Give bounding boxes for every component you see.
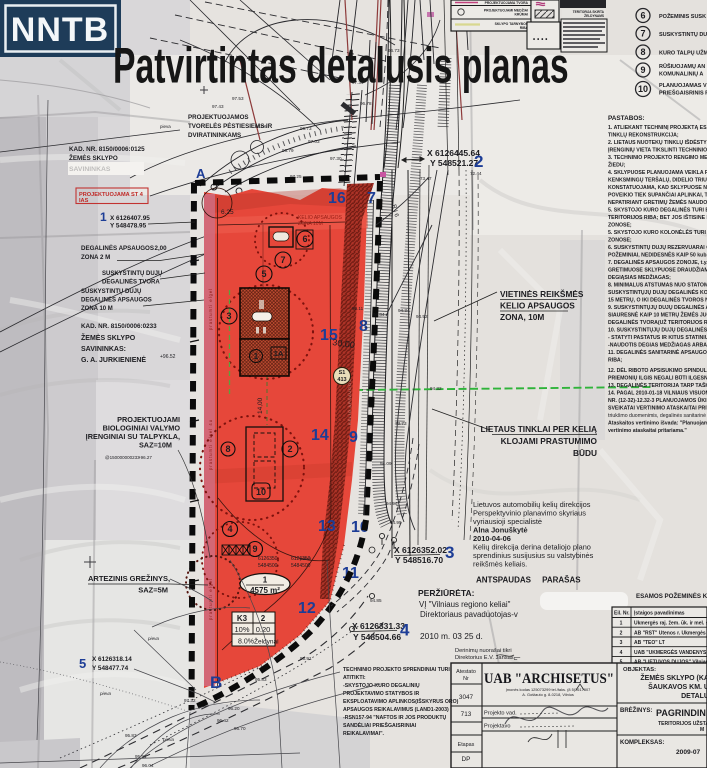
svg-text:PROJEKTUOJAMOS: PROJEKTUOJAMOS [188, 114, 249, 121]
svg-text:RŪŠIUOJAMŲ AN: RŪŠIUOJAMŲ AN [659, 62, 705, 70]
svg-text:pieva: pieva [299, 556, 311, 561]
svg-text:96.79: 96.79 [282, 148, 294, 153]
svg-text:5: 5 [261, 269, 266, 279]
svg-text:prastumti elgel: prastumti elgel [208, 288, 213, 330]
svg-text:PRIEŠGAISRINIS R: PRIEŠGAISRINIS R [659, 89, 707, 97]
svg-text:X 6126331.33: X 6126331.33 [352, 621, 405, 631]
svg-text:10: 10 [638, 84, 648, 94]
svg-text:KAD. NR. 8150/0006:0233: KAD. NR. 8150/0006:0233 [81, 323, 157, 330]
svg-text:G. A. JURKIENIENĖ: G. A. JURKIENIENĖ [81, 356, 146, 364]
svg-text:96.73: 96.73 [300, 126, 312, 131]
svg-text:POŽEMINIS SUSK: POŽEMINIS SUSK [659, 12, 706, 20]
svg-text:SUSKYSTINTŲ DU: SUSKYSTINTŲ DU [659, 32, 707, 38]
svg-text:SUSKYSTINTŲ DUJŲ: SUSKYSTINTŲ DUJŲ [81, 289, 141, 295]
svg-text:GRETIMUOSE SKLYPUOSE DRAUDŽIAM: GRETIMUOSE SKLYPUOSE DRAUDŽIAMA ST [608, 266, 707, 274]
svg-text:14. PAGAL 2010-01-18 VILNIAUS: 14. PAGAL 2010-01-18 VILNIAUS VISUOMENĖ [608, 390, 707, 397]
svg-text:8: 8 [359, 318, 368, 335]
svg-text:REIKALAVIMAI".: REIKALAVIMAI". [343, 731, 385, 737]
svg-text:DEGALINĖS APSAUGOS: DEGALINĖS APSAUGOS [81, 245, 154, 252]
svg-text:Ataskaitos vertinimo išvada: ": Ataskaitos vertinimo išvada: "Planuojamo… [608, 421, 707, 427]
svg-text:KLOJAMI PRASTUMIMO: KLOJAMI PRASTUMIMO [501, 436, 598, 446]
svg-text:Y 548521.27: Y 548521.27 [430, 158, 478, 168]
svg-text:IAS: IAS [79, 198, 89, 204]
svg-text:OBJEKTAS:: OBJEKTAS: [623, 667, 656, 673]
svg-text:-RSN157-94 "NAFTOS IR JOS PROD: -RSN157-94 "NAFTOS IR JOS PRODUKTŲ [343, 715, 447, 721]
svg-text:APSAUGOS REIKALAVIMUS (LAND1-2: APSAUGOS REIKALAVIMUS (LAND1-2003) [343, 707, 449, 713]
svg-text:413: 413 [337, 377, 346, 383]
svg-text:Y 548478.95: Y 548478.95 [110, 223, 147, 230]
svg-text:POVEIKIO TIEK SUPANČIAI APLINK: POVEIKIO TIEK SUPANČIAI APLINKAI, TIEK [608, 192, 707, 199]
svg-text:ŽELDYNAMS: ŽELDYNAMS [584, 13, 604, 18]
svg-text:TVORELĖS PĖSTIESIEMS IR: TVORELĖS PĖSTIESIEMS IR [188, 123, 273, 130]
svg-text:94.85: 94.85 [370, 598, 382, 603]
svg-text:12. DĖL RIBOTO APSISUKIMO SPIN: 12. DĖL RIBOTO APSISUKIMO SPINDULIO DE [608, 367, 707, 374]
svg-text:PASTABOS:: PASTABOS: [608, 115, 645, 122]
svg-text:ESAMOS POŽEMINĖS KOM: ESAMOS POŽEMINĖS KOM [636, 592, 707, 600]
svg-text:BRĖŽINYS:: BRĖŽINYS: [620, 706, 652, 714]
svg-text:ZONOSE;: ZONOSE; [608, 238, 632, 244]
svg-text:97.30: 97.30 [330, 156, 342, 161]
svg-text:PROJEKTAVIMO STATYBOS IR: PROJEKTAVIMO STATYBOS IR [343, 691, 420, 697]
svg-text:10%: 10% [234, 625, 249, 634]
svg-text:713: 713 [461, 711, 472, 718]
svg-text:4575 m²: 4575 m² [250, 586, 280, 595]
svg-text:⫍: ⫍ [514, 656, 521, 662]
svg-text:SUSKYSTINTŲ DUJŲ: SUSKYSTINTŲ DUJŲ [102, 271, 162, 277]
svg-text:SAVININKAS:: SAVININKAS: [81, 346, 126, 353]
svg-text:Derinimų nuorašai tikri: Derinimų nuorašai tikri [455, 648, 512, 654]
svg-text:pieva: pieva [162, 737, 174, 742]
svg-text:4: 4 [400, 621, 410, 640]
svg-text:triukšmo duomenimis, degalinės: triukšmo duomenimis, degalinės sanitarin… [608, 413, 706, 419]
svg-text:DEGALINĖS APSAUGOS: DEGALINĖS APSAUGOS [81, 297, 152, 304]
svg-text:96.42: 96.42 [217, 718, 229, 723]
svg-text:SAZ=10M: SAZ=10M [139, 441, 172, 450]
svg-text:7. DEGALINĖS APSAUGOS ZONOJE,: 7. DEGALINĖS APSAUGOS ZONOJE, t.y. 2M A [608, 259, 707, 266]
svg-text:TINKLŲ REKONSTRUKCIJA;: TINKLŲ REKONSTRUKCIJA; [608, 133, 679, 139]
svg-text:S1: S1 [339, 370, 346, 376]
svg-text:97.43: 97.43 [212, 104, 224, 109]
svg-text:6: 6 [640, 11, 645, 21]
svg-text:KELIO APSAUGOS: KELIO APSAUGOS [347, 379, 352, 425]
svg-text:3: 3 [620, 640, 623, 646]
svg-text:TECHNINIO PROJEKTO SPRENDINIAI: TECHNINIO PROJEKTO SPRENDINIAI TURI [343, 667, 450, 673]
svg-text:ANTSPAUDAS PARAŠAS: ANTSPAUDAS PARAŠAS [476, 576, 581, 585]
svg-text:K3: K3 [237, 614, 248, 623]
svg-text:94.52: 94.52 [416, 314, 428, 319]
svg-text:8: 8 [225, 444, 230, 454]
svg-text:prastumti elgel 4u: prastumti elgel 4u [208, 419, 213, 470]
svg-text:7: 7 [640, 29, 645, 39]
svg-text:Direktorius E.V. Jansas: Direktorius E.V. Jansas [455, 655, 514, 661]
svg-text:KENKSMINGŲ TERŠALŲ, DIDELIO TR: KENKSMINGŲ TERŠALŲ, DIDELIO TRIUKŠM [608, 176, 707, 184]
svg-text:KOMUNALINIŲ A: KOMUNALINIŲ A [659, 72, 703, 78]
svg-text:13: 13 [318, 518, 336, 535]
svg-text:ATITIKTI:: ATITIKTI: [343, 675, 366, 681]
svg-text:KRŪMAI: KRŪMAI [514, 13, 528, 17]
svg-text:B: B [210, 673, 222, 692]
svg-text:96.70: 96.70 [234, 726, 246, 731]
svg-text:A: A [196, 166, 206, 181]
svg-text:73.47: 73.47 [420, 176, 432, 181]
svg-text:A. Goštauto g. 8-0218, Vilnius: A. Goštauto g. 8-0218, Vilnius [522, 692, 574, 697]
svg-text:pieva: pieva [160, 124, 171, 129]
svg-text:Atestato: Atestato [456, 669, 476, 675]
svg-text:7: 7 [280, 255, 285, 265]
svg-text:VĮ "Vilniaus regiono keliai": VĮ "Vilniaus regiono keliai" [419, 600, 511, 609]
svg-text:6. SUSKYSTINTŲ DUJŲ REZERVUARA: 6. SUSKYSTINTŲ DUJŲ REZERVUARAI GALI [608, 245, 707, 251]
svg-text:5: 5 [79, 656, 86, 671]
svg-text:3. TECHNINIO PROJEKTO RENGIMO: 3. TECHNINIO PROJEKTO RENGIMO METU TU [608, 155, 707, 161]
svg-text:ŽIEDU;: ŽIEDU; [608, 161, 626, 169]
svg-text:9: 9 [640, 65, 645, 75]
svg-text:RIBA;: RIBA; [608, 358, 623, 364]
svg-text:Želdynai: Želdynai [254, 637, 279, 646]
svg-text:5484500: 5484500 [291, 563, 311, 569]
svg-text:TERITORIJOS UŽSTA: TERITORIJOS UŽSTA [658, 719, 707, 727]
svg-text:PERŽIŪRĖTA:: PERŽIŪRĖTA: [418, 587, 475, 598]
svg-text:13. DEGALINĖS TERITORIJA TARP: 13. DEGALINĖS TERITORIJA TARP TAŠKŲ A [608, 381, 707, 389]
svg-text:4: 4 [227, 524, 232, 534]
svg-text:ŠAUKAVOS KM. U: ŠAUKAVOS KM. U [648, 682, 707, 691]
svg-text:SAZ=5M: SAZ=5M [138, 586, 168, 595]
svg-text:5. SKYSTOJO KURO KOLONĖLĖS TUR: 5. SKYSTOJO KURO KOLONĖLĖS TURI BŪTI [608, 229, 707, 236]
svg-text:96.78: 96.78 [360, 101, 372, 106]
svg-text:3: 3 [226, 311, 231, 321]
svg-text:94.32: 94.32 [430, 386, 442, 391]
svg-text:95.83: 95.83 [255, 677, 267, 682]
svg-text:KAD. NR. 8150/0006:0125: KAD. NR. 8150/0006:0125 [69, 146, 145, 153]
svg-text:96.20: 96.20 [228, 706, 240, 711]
svg-text:DEGALINĖS TVORA: DEGALINĖS TVORA [102, 279, 160, 286]
svg-text:SIAURESNĖ KAIP 10 METRŲ ŽEMĖS: SIAURESNĖ KAIP 10 METRŲ ŽEMĖS JUOSTA [608, 311, 707, 319]
svg-text:Įstaigos pavadinimas: Įstaigos pavadinimas [634, 611, 685, 617]
svg-text:Y 548477.74: Y 548477.74 [92, 665, 129, 672]
svg-text:Direktoriaus pavaduotojas-v: Direktoriaus pavaduotojas-v [420, 610, 518, 619]
svg-text:2009-07: 2009-07 [676, 749, 701, 756]
svg-text:Y 548516.70: Y 548516.70 [395, 555, 443, 565]
svg-text:96.04: 96.04 [142, 763, 154, 768]
svg-text:72.44: 72.44 [470, 171, 482, 176]
svg-text:PRIEMONIŲ ILGIS NEGALI BŪTI IL: PRIEMONIŲ ILGIS NEGALI BŪTI ILGESNIS N [608, 375, 707, 382]
svg-text:16: 16 [328, 190, 346, 207]
svg-text:vertinimo ataskaitai pritariam: vertinimo ataskaitai pritariama." [608, 428, 687, 434]
svg-text:Projektavo: Projektavo [484, 724, 510, 730]
svg-text:6: 6 [302, 234, 307, 244]
svg-text:POŽEMINIAI, NEDIDESNĖS KAIP 50: POŽEMINIAI, NEDIDESNĖS KAIP 50 kub. m. T [608, 251, 707, 259]
svg-text:Nr: Nr [463, 676, 469, 682]
svg-text:94.09: 94.09 [380, 461, 392, 466]
svg-text:KELIO APSAUGOS: KELIO APSAUGOS [500, 301, 575, 311]
svg-text:94.95: 94.95 [390, 520, 402, 525]
svg-text:VIETINĖS REIKŠMĖS: VIETINĖS REIKŠMĖS [500, 288, 584, 299]
svg-text:- STATYTI PASTATUS IR KITUS ST: - STATYTI PASTATUS IR KITUS STATINIUS; [608, 335, 707, 341]
svg-text:94.34: 94.34 [398, 308, 410, 313]
svg-text:SANDĖLIAI PRIEŠGAISRINIAI: SANDĖLIAI PRIEŠGAISRINIAI [343, 721, 417, 729]
svg-text:1. ATLIEKANT TECHNINĮ PROJEKTĄ: 1. ATLIEKANT TECHNINĮ PROJEKTĄ ESANT P [608, 125, 707, 131]
svg-text:73.73: 73.73 [395, 421, 407, 426]
svg-text:97.32: 97.32 [184, 698, 196, 703]
svg-text:2: 2 [620, 630, 623, 636]
svg-text:NNTB: NNTB [11, 11, 109, 49]
svg-text:2. LIETAUS NUOTEKŲ TINKLŲ IŠDĖ: 2. LIETAUS NUOTEKŲ TINKLŲ IŠDĖSTYMĄ, S [608, 138, 707, 146]
svg-text:6126350: 6126350 [258, 556, 278, 562]
svg-text:Etapas: Etapas [458, 742, 475, 748]
svg-text:4. SKLYPUOSE PLANUOJAMA VEIKLA: 4. SKLYPUOSE PLANUOJAMA VEIKLA PAVOJ [608, 170, 707, 176]
svg-text:ŽEMĖS SKLYPO (KA: ŽEMĖS SKLYPO (KA [640, 673, 707, 682]
svg-text:9. SUSKYSTINTŲJŲ DUJŲ DEGALINĖ: 9. SUSKYSTINTŲJŲ DUJŲ DEGALINĖS APSAU [608, 304, 707, 311]
svg-text:+96.52: +96.52 [160, 354, 176, 360]
svg-text:95.91: 95.91 [135, 754, 147, 759]
svg-text:ĮRENGINIŲ VIETA TIKSLINTI TECH: ĮRENGINIŲ VIETA TIKSLINTI TECHNINIO PRO [608, 148, 707, 154]
svg-text:97.53: 97.53 [232, 96, 244, 101]
svg-text:ARTEZINIS GREŽINYS,: ARTEZINIS GREŽINYS, [88, 574, 170, 583]
svg-text:DEGALINĖS TVORA(UŽ TERITORIJOS: DEGALINĖS TVORA(UŽ TERITORIJOS RIBOS [608, 318, 707, 326]
svg-text:1: 1 [254, 352, 259, 361]
svg-text:pieva: pieva [99, 691, 111, 696]
svg-text:ZONOSE;: ZONOSE; [608, 223, 632, 229]
svg-text:2: 2 [287, 444, 292, 454]
svg-text:X 6126352.02: X 6126352.02 [394, 545, 447, 555]
svg-text:8.0%: 8.0% [238, 639, 254, 646]
svg-text:SVEIKATAI VERTINIMO ATASKAITAI: SVEIKATAI VERTINIMO ATASKAITAI PRITA [608, 406, 707, 412]
svg-text:7: 7 [367, 190, 376, 207]
svg-text:Y 548504.66: Y 548504.66 [353, 632, 401, 642]
svg-text:3047: 3047 [459, 694, 474, 701]
svg-text:6.25: 6.25 [221, 209, 234, 216]
svg-text:5. SKYSTOJO KURO DEGALINĖS TUR: 5. SKYSTOJO KURO DEGALINĖS TURI BŪTI [608, 207, 707, 214]
svg-text:15 METRŲ, O IKI DEGALINĖS TVOR: 15 METRŲ, O IKI DEGALINĖS TVOROS NE MA [608, 297, 707, 304]
svg-text:DETALU: DETALU [681, 693, 707, 700]
svg-text:ŽEMĖS SKLYPO: ŽEMĖS SKLYPO [69, 153, 118, 162]
svg-text:@150000000233: @150000000233 [105, 455, 140, 460]
svg-text:SUSKYSTINTŲJŲ DUJŲ DEGALINĖS K: SUSKYSTINTŲJŲ DUJŲ DEGALINĖS KOLON [608, 289, 707, 296]
svg-text:PLANUOJAMAS V: PLANUOJAMAS V [659, 83, 707, 89]
svg-text:NEPATIRIANT GRETIMŲ ŽEMĖS NAUD: NEPATIRIANT GRETIMŲ ŽEMĖS NAUDOTOJ [608, 198, 707, 206]
svg-text:DP: DP [462, 756, 471, 763]
svg-text:2: 2 [261, 614, 266, 623]
svg-text:reikšmės keliais.: reikšmės keliais. [473, 560, 527, 569]
svg-text:LIETAUS TINKLAI PER KELIĄ: LIETAUS TINKLAI PER KELIĄ [481, 424, 597, 434]
svg-text:AB "TEO" LT: AB "TEO" LT [634, 640, 665, 646]
svg-text:11. DEGALINĖS SANITARINĖ APSAU: 11. DEGALINĖS SANITARINĖ APSAUGOS ZON [608, 349, 707, 356]
svg-text:DVIRATININKAMS: DVIRATININKAMS [188, 132, 241, 139]
svg-text:ZONA, 10M: ZONA, 10M [500, 312, 544, 322]
svg-text:5484500: 5484500 [258, 563, 278, 569]
svg-text:12: 12 [298, 600, 316, 617]
svg-text:96.11: 96.11 [352, 306, 364, 311]
svg-text:BŪDU: BŪDU [573, 448, 597, 458]
svg-text:8: 8 [640, 47, 645, 57]
svg-text:UAB "ARCHISETUS": UAB "ARCHISETUS" [484, 671, 614, 687]
svg-text:14: 14 [311, 427, 329, 444]
svg-text:AB "RST" Utenos r. Ukmergės sk: AB "RST" Utenos r. Ukmergės sk [634, 630, 707, 636]
svg-text:Eil. Nr.: Eil. Nr. [614, 611, 630, 617]
svg-text:Projekto vad.: Projekto vad. [484, 711, 517, 717]
svg-text:KONSTATUOJAMA, KAD SKLYPUOSE N: KONSTATUOJAMA, KAD SKLYPUOSE NUMAT [608, 185, 707, 191]
svg-text:PAGRINDIN: PAGRINDIN [656, 708, 706, 718]
svg-text:94.96: 94.96 [386, 501, 398, 506]
svg-text:10. SUSKYSTINTŲJŲ DUJŲ DEGALIN: 10. SUSKYSTINTŲJŲ DUJŲ DEGALINĖS APSA [608, 327, 707, 334]
svg-text:ŽEMĖS SKLYPO: ŽEMĖS SKLYPO [81, 333, 136, 342]
svg-text:1: 1 [620, 621, 623, 627]
svg-text:DEGIĄSIAS MEDŽIAGAS;: DEGIĄSIAS MEDŽIAGAS; [608, 273, 671, 281]
svg-text:14,00: 14,00 [257, 397, 264, 414]
svg-text:95.83: 95.83 [125, 733, 137, 738]
svg-text:3: 3 [445, 543, 454, 562]
svg-text:KOMPLEKSAS:: KOMPLEKSAS: [620, 740, 664, 746]
svg-text:1: 1 [100, 210, 107, 224]
svg-text:pieva: pieva [147, 636, 159, 641]
svg-text:2010 m. 03 25 d.: 2010 m. 03 25 d. [420, 631, 483, 641]
svg-text:X 6126407.95: X 6126407.95 [110, 215, 150, 222]
svg-text:KURO TALPŲ UŽM: KURO TALPŲ UŽM [659, 49, 707, 57]
svg-text:ZONA 2 M: ZONA 2 M [81, 254, 110, 261]
svg-text:NR. (12-32)-12.32-3 PLANUOJAMO: NR. (12-32)-12.32-3 PLANUOJAMOS ŪKINĖS V [608, 397, 707, 404]
svg-text:95.91: 95.91 [300, 656, 312, 661]
svg-text:4: 4 [620, 650, 623, 656]
svg-text:1A: 1A [274, 349, 284, 358]
svg-text:97.03: 97.03 [308, 139, 320, 144]
svg-text:9: 9 [349, 429, 358, 446]
svg-text:1: 1 [263, 576, 268, 585]
svg-text:X 6126445.64: X 6126445.64 [427, 148, 480, 158]
svg-text:ZONA 10 M: ZONA 10 M [81, 306, 113, 312]
svg-text:UAB "UKMERGĖS VANDENYS": UAB "UKMERGĖS VANDENYS" [634, 649, 707, 656]
svg-text:10: 10 [256, 487, 266, 497]
svg-text:-NAUDOTIS DEGIAS MEDŽIAGAS ARB: -NAUDOTIS DEGIAS MEDŽIAGAS ARBA KŪR [608, 341, 707, 349]
svg-text:Ukmergės raj. žem. ūk. ir mel.: Ukmergės raj. žem. ūk. ir mel. sk. [634, 621, 707, 627]
svg-text:-SKYSTOJO KURO DEGALINIŲ: -SKYSTOJO KURO DEGALINIŲ [343, 683, 420, 689]
svg-text:ZONA 10M: ZONA 10M [298, 221, 323, 227]
svg-text:+96.27: +96.27 [138, 455, 152, 460]
svg-text:2: 2 [474, 152, 483, 171]
svg-text:SAVININKAS: SAVININKAS [69, 166, 111, 173]
svg-text:PROJEKTUOJAMA TVORA: PROJEKTUOJAMA TVORA [485, 1, 529, 5]
svg-text:M: M [700, 727, 704, 733]
svg-text:8. MINIMALUS ATSTUMAS NUO STAT: 8. MINIMALUS ATSTUMAS NUO STATOMŲ P [608, 283, 707, 289]
svg-text:X 6126318.14: X 6126318.14 [92, 656, 132, 663]
svg-text:TERITORIJOS RIBA; BET JOS IŠTI: TERITORIJOS RIBA; BET JOS IŠTISINE RIBA [608, 213, 707, 221]
svg-text:2,00: 2,00 [155, 245, 168, 252]
svg-text:9: 9 [252, 544, 257, 554]
svg-text:94.84: 94.84 [373, 312, 385, 317]
svg-text:PROJEKTUOJAMA ST 4: PROJEKTUOJAMA ST 4 [79, 192, 144, 198]
svg-text:EKSPLOATAVIMO APLINKOS(IŠSKYRU: EKSPLOATAVIMO APLINKOS(IŠSKYRUS ORO) [343, 697, 459, 705]
svg-text:Patvirtintas detalusis planas: Patvirtintas detalusis planas [113, 38, 569, 94]
